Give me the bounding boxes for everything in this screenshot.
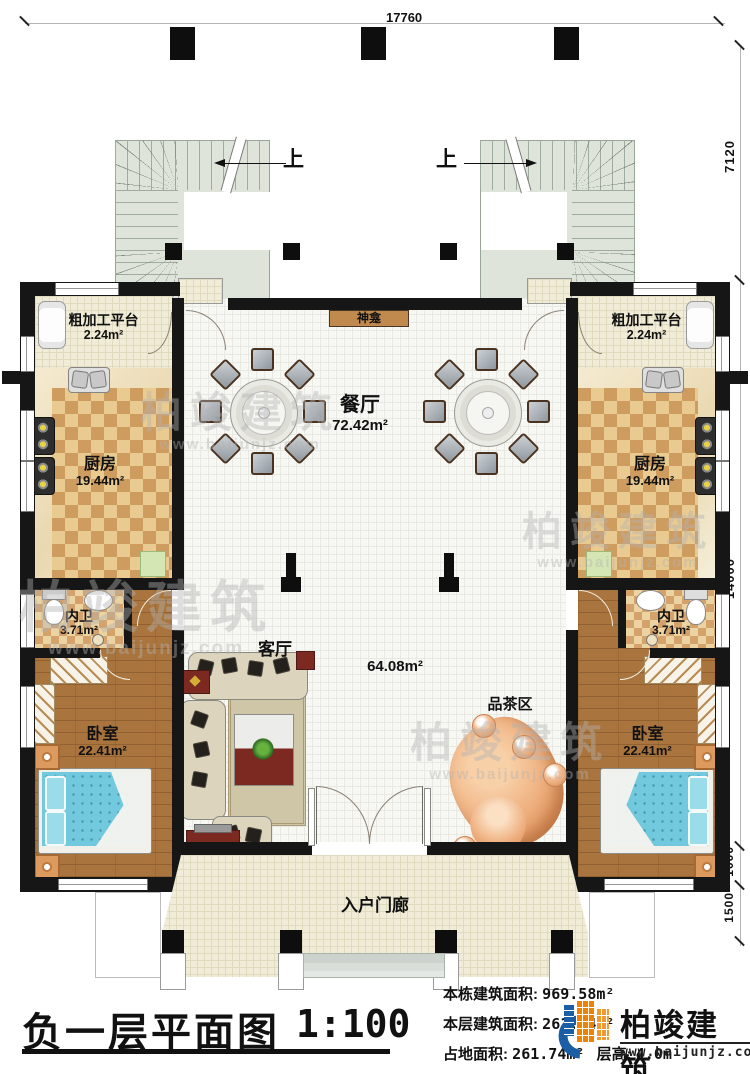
stair-void bbox=[184, 192, 270, 250]
column bbox=[439, 577, 459, 592]
room-name: 粗加工平台 bbox=[35, 312, 172, 328]
wall-bath-right-south bbox=[650, 648, 730, 658]
wardrobe bbox=[50, 656, 108, 684]
room-area: 2.24m² bbox=[578, 328, 715, 342]
column bbox=[361, 27, 386, 60]
brand-website: www.baijunjz.com bbox=[620, 1042, 750, 1060]
chair bbox=[423, 400, 446, 423]
dim-top-label: 17760 bbox=[386, 11, 422, 26]
room-label-living: 客厅 bbox=[240, 640, 310, 660]
room-area: 72.42m² bbox=[300, 417, 420, 434]
stair-up-label-right: 上 bbox=[436, 148, 457, 172]
brand-logo-tower-icon bbox=[564, 1004, 574, 1036]
tea-stool bbox=[543, 763, 567, 787]
room-name: 粗加工平台 bbox=[578, 312, 715, 328]
wall-stub-right bbox=[730, 371, 748, 384]
wall-kitchen-divider-left bbox=[20, 578, 184, 590]
porch-column bbox=[435, 930, 457, 953]
room-name: 餐厅 bbox=[300, 394, 420, 417]
title-underline bbox=[22, 1049, 390, 1054]
room-area: 22.41m² bbox=[575, 744, 720, 759]
room-name: 厨房 bbox=[30, 456, 170, 474]
room-label-tea: 品茶区 bbox=[468, 696, 552, 713]
window bbox=[716, 594, 729, 648]
entry-steps bbox=[303, 953, 445, 978]
dim-right-stair: 7120 bbox=[722, 140, 737, 173]
room-area: 3.71m² bbox=[33, 624, 125, 638]
right-dimension-line bbox=[740, 46, 741, 946]
stair-arrow-right bbox=[464, 163, 526, 164]
window bbox=[21, 336, 34, 372]
dining-table-center bbox=[482, 407, 494, 419]
floor-mat bbox=[140, 551, 166, 577]
brand-name: 柏竣建筑 bbox=[620, 1000, 750, 1074]
dim-right-steps: 1500 bbox=[722, 892, 736, 923]
wall-living-south-left bbox=[184, 842, 312, 855]
room-area: 3.71m² bbox=[625, 624, 717, 638]
brand-logo-tower-icon bbox=[576, 1000, 594, 1042]
chair bbox=[475, 348, 498, 371]
window bbox=[633, 283, 697, 295]
bed-pillow bbox=[688, 776, 709, 811]
stair-arrowhead-left bbox=[214, 159, 225, 167]
wardrobe bbox=[644, 656, 702, 684]
bed-pillow bbox=[45, 811, 66, 846]
room-label-dining: 餐厅 72.42m² bbox=[300, 394, 420, 434]
tea-stool bbox=[512, 735, 536, 759]
stair-fan bbox=[116, 141, 178, 190]
column bbox=[281, 577, 301, 592]
terrace-outline-left bbox=[95, 892, 161, 978]
floor-plan: 17760 7120 14000 1000 1500 上 上 bbox=[0, 0, 750, 1074]
tea-stool bbox=[472, 714, 496, 738]
shrine-label: 神龛 bbox=[329, 312, 409, 326]
sink-basin bbox=[663, 370, 681, 389]
column bbox=[440, 243, 457, 260]
stair-arrow-left bbox=[224, 163, 286, 164]
chair bbox=[199, 400, 222, 423]
room-name: 卧室 bbox=[30, 726, 175, 744]
wall-living-south-right bbox=[427, 842, 566, 855]
porch-column bbox=[280, 930, 302, 953]
room-area: 22.41m² bbox=[30, 744, 175, 759]
column-base bbox=[278, 953, 304, 990]
room-area: 19.44m² bbox=[580, 474, 720, 489]
room-area: 19.44m² bbox=[30, 474, 170, 489]
stair-up-label-left: 上 bbox=[283, 148, 304, 172]
window bbox=[21, 410, 34, 461]
wall-stub-left bbox=[2, 371, 20, 384]
tv bbox=[194, 824, 232, 833]
room-label-bath-left: 内卫 3.71m² bbox=[33, 608, 125, 638]
dim-tick bbox=[19, 16, 30, 27]
room-area-living: 64.08m² bbox=[350, 658, 440, 675]
chair bbox=[251, 348, 274, 371]
room-label-bath-right: 内卫 3.71m² bbox=[625, 608, 717, 638]
column bbox=[286, 553, 296, 579]
wall-inner-left bbox=[172, 298, 184, 578]
column bbox=[170, 27, 195, 60]
room-label-bedroom-left: 卧室 22.41m² bbox=[30, 726, 175, 759]
stair-landing-tile-left bbox=[178, 278, 223, 304]
room-label-prep-right: 粗加工平台 2.24m² bbox=[578, 312, 715, 342]
wall-kitchen-divider-right bbox=[566, 578, 730, 590]
window bbox=[716, 410, 729, 461]
room-name: 厨房 bbox=[580, 456, 720, 474]
sofa-pillow bbox=[221, 657, 238, 674]
room-label-prep-left: 粗加工平台 2.24m² bbox=[35, 312, 172, 342]
porch-column bbox=[551, 930, 573, 953]
stair-fan bbox=[573, 141, 635, 190]
floor-mat bbox=[586, 551, 612, 577]
top-dimension-line bbox=[25, 23, 725, 24]
room-area: 2.24m² bbox=[35, 328, 172, 342]
room-name: 内卫 bbox=[33, 608, 125, 624]
room-label-bedroom-right: 卧室 22.41m² bbox=[575, 726, 720, 759]
brand-logo-tower-icon bbox=[596, 1008, 609, 1040]
sink-basin bbox=[71, 370, 89, 389]
brand-logo bbox=[556, 998, 618, 1062]
room-name: 内卫 bbox=[625, 608, 717, 624]
window bbox=[716, 336, 729, 372]
plan-scale: 1:100 bbox=[296, 1002, 410, 1046]
sink-basin bbox=[645, 370, 663, 389]
bed-pillow bbox=[688, 811, 709, 846]
column bbox=[283, 243, 300, 260]
door-post bbox=[308, 788, 315, 846]
dim-tick bbox=[713, 16, 724, 27]
terrace-outline-right bbox=[589, 892, 655, 978]
column bbox=[554, 27, 579, 60]
window bbox=[55, 283, 119, 295]
stat-label: 本层建筑面积: bbox=[443, 1016, 538, 1033]
room-name: 卧室 bbox=[575, 726, 720, 744]
room-label-kitchen-left: 厨房 19.44m² bbox=[30, 456, 170, 489]
stair-arrowhead-right bbox=[526, 159, 537, 167]
stat-label: 本栋建筑面积: bbox=[443, 986, 538, 1003]
chair bbox=[527, 400, 550, 423]
chair bbox=[251, 452, 274, 475]
porch-column bbox=[162, 930, 184, 953]
column bbox=[444, 553, 454, 579]
wall-bath-left-south bbox=[20, 648, 100, 658]
sofa-pillow bbox=[193, 741, 211, 759]
sofa-pillow bbox=[247, 660, 264, 677]
stair-void bbox=[481, 192, 567, 250]
wall-dining-north bbox=[228, 298, 522, 310]
column-base bbox=[160, 953, 186, 990]
chair bbox=[475, 452, 498, 475]
window bbox=[58, 879, 148, 890]
bed-pillow bbox=[45, 776, 66, 811]
dining-table-center bbox=[258, 407, 270, 419]
wall-bath-left bbox=[124, 578, 132, 648]
sofa-pillow bbox=[191, 771, 208, 788]
column bbox=[165, 243, 182, 260]
room-label-porch: 入户门廊 bbox=[310, 896, 440, 916]
plant bbox=[250, 736, 276, 762]
room-label-kitchen-right: 厨房 19.44m² bbox=[580, 456, 720, 489]
stat-label: 占地面积: bbox=[443, 1046, 508, 1063]
wall-inner-right bbox=[566, 298, 578, 578]
column bbox=[557, 243, 574, 260]
door-post bbox=[424, 788, 431, 846]
sink-basin bbox=[89, 370, 107, 389]
window bbox=[604, 879, 694, 890]
